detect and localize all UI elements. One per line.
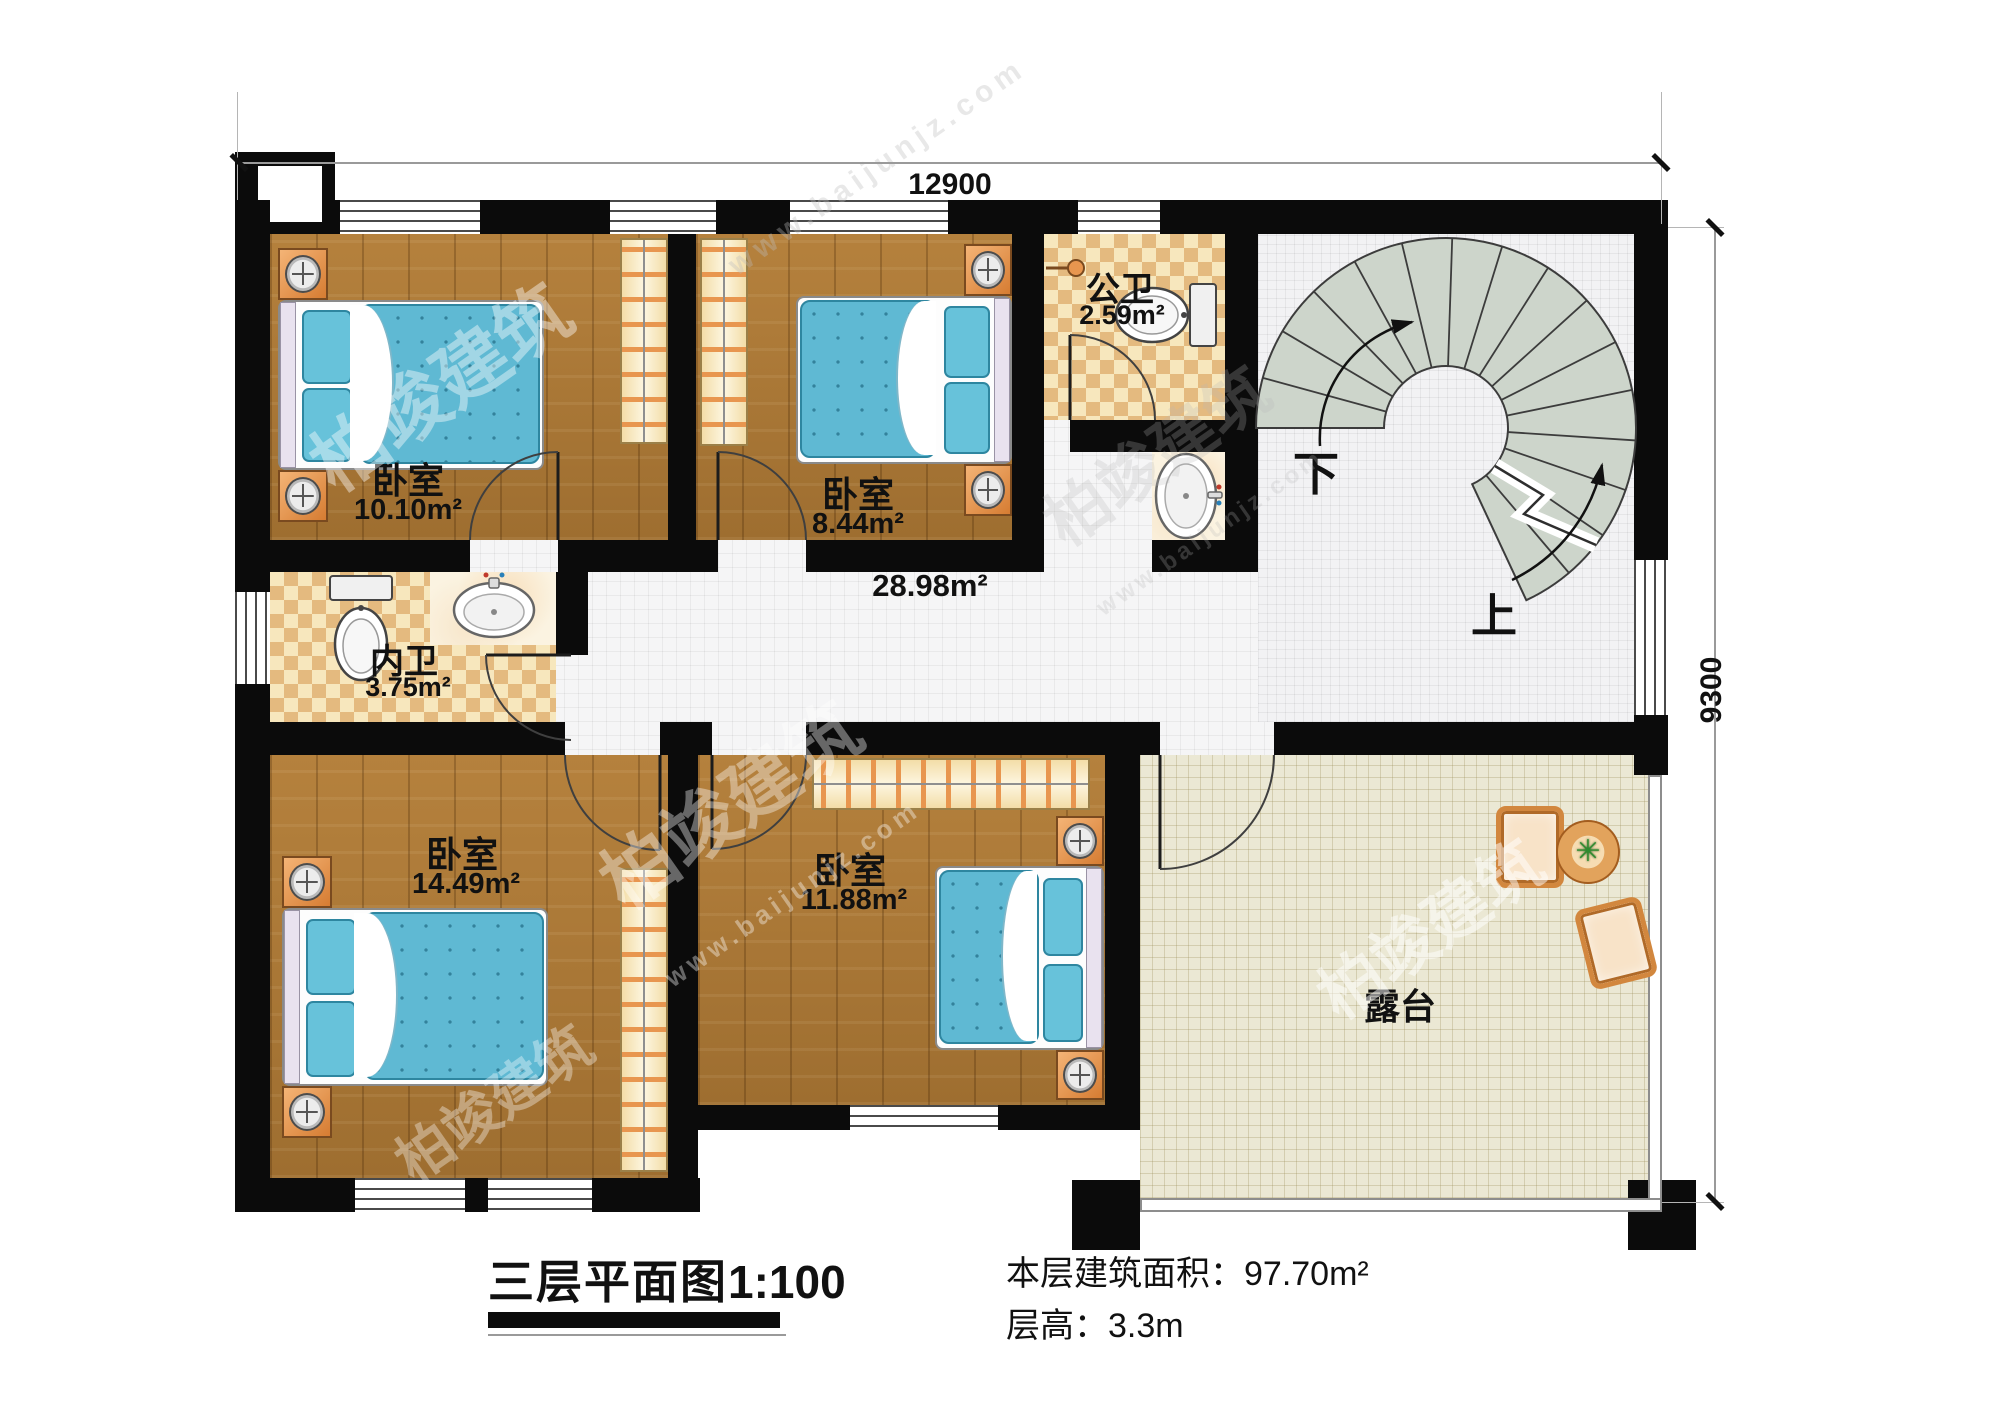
wall-bedroom3-bottom	[235, 1178, 700, 1212]
wall-left	[235, 200, 270, 1212]
terrace-chair	[1496, 806, 1564, 888]
bed-headboard	[280, 302, 296, 468]
sink-alcove-floor	[1152, 452, 1225, 540]
bed-pillow	[944, 382, 990, 454]
terrace-column-right	[1628, 1180, 1696, 1250]
nightstand	[278, 248, 328, 300]
wall-bedroom4-right	[1105, 755, 1140, 1105]
room-area-bedroom1: 10.10m²	[354, 494, 462, 527]
stair-up-label: 上	[1471, 580, 1517, 646]
nightstand	[282, 856, 332, 908]
nightstand	[282, 1086, 332, 1138]
nightstand	[964, 244, 1012, 296]
wall-bedroom3-4	[668, 755, 698, 1212]
wardrobe-bedroom2	[700, 238, 748, 446]
lamp-icon	[289, 863, 325, 901]
stair-down-label: 下	[1293, 438, 1339, 504]
dimension-top-label: 12900	[908, 168, 991, 202]
nightstand	[1056, 1050, 1104, 1100]
title-block: 三层平面图1:100	[488, 1246, 846, 1312]
wall-bedroom1-2	[668, 234, 696, 572]
plant-icon: ✳	[1575, 837, 1600, 867]
window-privatebath-left	[235, 592, 270, 684]
wardrobe-bedroom3	[620, 868, 668, 1172]
bed-bedroom1	[278, 300, 544, 470]
bed-pillow	[1043, 964, 1083, 1042]
bed-pillow	[302, 388, 352, 462]
lamp-icon	[285, 255, 321, 293]
room-area-public-bath: 2.59m²	[1079, 300, 1165, 331]
wall-row-722-b	[660, 722, 712, 755]
floor-height-value: 3.3m	[1108, 1307, 1184, 1345]
plan-scale: 1:100	[728, 1256, 846, 1308]
room-label-terrace: 露台	[1364, 978, 1436, 1030]
nightstand	[964, 464, 1012, 516]
terrace-table: ✳	[1556, 820, 1620, 884]
wall-privatebath-right	[556, 572, 588, 655]
terrace-parapet-right	[1648, 775, 1662, 1202]
nightstand	[278, 470, 328, 522]
window-bedroom4-bottom	[850, 1105, 998, 1130]
floor-area-label: 本层建筑面积：	[1006, 1255, 1244, 1293]
dimension-right-label: 9300	[1695, 657, 1729, 724]
window-bedroom2-top-a	[610, 200, 716, 234]
wall-row-722-c	[806, 722, 1160, 755]
dimension-line-top	[238, 162, 1662, 164]
room-area-hallway: 28.98m²	[872, 568, 987, 604]
window-bedroom3-bottom-b	[488, 1178, 592, 1212]
terrace-floor	[1140, 755, 1650, 1198]
bed-pillow	[944, 306, 990, 378]
nightstand	[1056, 816, 1104, 866]
wall-row-722-d	[1274, 722, 1668, 755]
bed-bedroom2	[796, 296, 1012, 464]
terrace-column-left	[1072, 1180, 1140, 1250]
window-stair-right	[1634, 560, 1668, 715]
wall-publicbath-stair	[1225, 200, 1258, 540]
window-bedroom3-bottom-a	[355, 1178, 465, 1212]
floor-plan-canvas: ✳	[0, 0, 2000, 1413]
wall-under-sink	[1152, 540, 1258, 572]
extension-line	[237, 92, 238, 200]
room-area-bedroom4: 11.88m²	[801, 884, 907, 917]
wall-corridor-a	[235, 540, 470, 572]
private-bath-sink-alcove	[430, 572, 556, 645]
lamp-icon	[1063, 1057, 1097, 1093]
wall-under-publicbath	[1070, 420, 1225, 452]
room-area-bedroom3: 14.49m²	[412, 868, 520, 901]
bed-headboard	[1086, 868, 1102, 1048]
bed-pillow	[302, 310, 352, 384]
window-bedroom1-top	[340, 200, 480, 234]
wall-bedroom2-right	[1012, 200, 1044, 572]
extension-line	[1661, 92, 1662, 224]
wall-corridor-b	[558, 540, 718, 572]
title-underline-bar	[488, 1312, 780, 1328]
lamp-icon	[971, 251, 1005, 289]
bed-headboard	[994, 298, 1010, 462]
plan-title: 三层平面图	[488, 1256, 728, 1308]
room-area-bedroom2: 8.44m²	[812, 508, 904, 541]
floor-area-value: 97.70m²	[1244, 1255, 1369, 1293]
lamp-icon	[971, 471, 1005, 509]
floor-height-label: 层高：	[1006, 1307, 1108, 1345]
wardrobe-bedroom4	[812, 758, 1090, 810]
bed-pillow	[306, 1001, 356, 1077]
room-area-private-bath: 3.75m²	[365, 672, 451, 703]
bed-bedroom4	[935, 866, 1104, 1050]
floor-height-text: 层高：3.3m	[1006, 1298, 1184, 1347]
window-publicbath-top	[1078, 200, 1160, 234]
bed-pillow	[1043, 878, 1083, 956]
lamp-icon	[1063, 823, 1097, 859]
lamp-icon	[289, 1093, 325, 1131]
lamp-icon	[285, 477, 321, 515]
floor-area-text: 本层建筑面积：97.70m²	[1006, 1246, 1369, 1295]
wardrobe-bedroom1	[620, 238, 668, 444]
title-underline-thin	[488, 1334, 786, 1336]
terrace-parapet-bottom	[1140, 1198, 1662, 1212]
bed-bedroom3	[282, 908, 548, 1086]
window-bedroom2-top-b	[790, 200, 948, 234]
bed-headboard	[284, 910, 300, 1084]
wall-row-722-a	[235, 722, 565, 755]
bed-pillow	[306, 919, 356, 995]
